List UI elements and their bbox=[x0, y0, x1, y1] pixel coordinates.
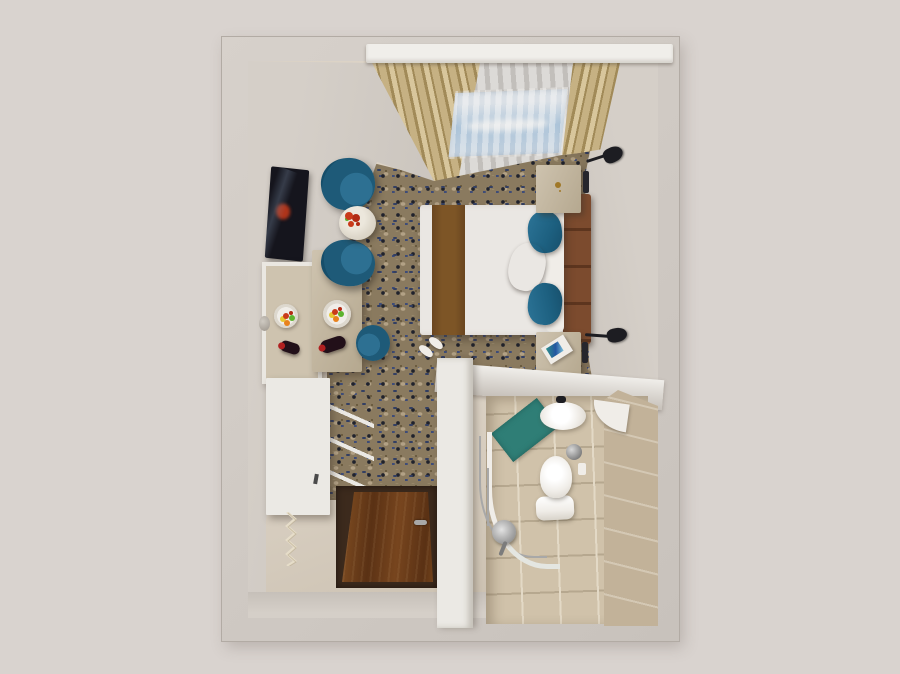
wall-mounted-tv bbox=[265, 166, 309, 261]
wine-bottle bbox=[319, 334, 348, 354]
coat-hook-rack bbox=[283, 512, 299, 566]
fruit-reflection bbox=[283, 313, 289, 319]
window-pelmet bbox=[366, 44, 673, 63]
mirror-reflection-fruit-plate bbox=[274, 304, 298, 328]
sheer-overlay bbox=[448, 87, 569, 159]
fruit bbox=[332, 309, 338, 315]
door-handle bbox=[414, 520, 427, 525]
mirror-reflection-wine-bottle bbox=[279, 339, 301, 356]
shelf-rails bbox=[328, 382, 374, 502]
round-marble-side-table bbox=[339, 206, 376, 240]
red-flower-centerpiece bbox=[345, 212, 353, 220]
magazine-cover bbox=[546, 341, 564, 358]
shower-slide-rail bbox=[487, 468, 489, 526]
upholstered-headboard bbox=[562, 194, 591, 344]
faucet bbox=[556, 396, 566, 403]
tv-glare bbox=[265, 166, 298, 261]
wooden-entry-door bbox=[336, 486, 438, 588]
trash-bin bbox=[566, 444, 582, 460]
fruit-plate bbox=[323, 300, 351, 328]
nightstand-left bbox=[536, 165, 581, 213]
wall-niche-top bbox=[583, 171, 589, 193]
door-recess bbox=[336, 486, 438, 588]
brown-bed-runner bbox=[432, 205, 465, 335]
wall-niche-bottom bbox=[582, 342, 588, 363]
door-knob bbox=[259, 316, 270, 331]
room-render-canvas bbox=[0, 0, 900, 674]
wine-cap bbox=[318, 344, 327, 353]
wood-grain bbox=[336, 486, 438, 588]
teal-desk-chair bbox=[356, 325, 390, 361]
bathroom-partition-wall bbox=[437, 358, 473, 628]
washbasin bbox=[540, 402, 586, 430]
room-keys bbox=[555, 182, 561, 188]
open-shelf-rails bbox=[328, 382, 374, 502]
wine-cap-reflection bbox=[277, 341, 286, 350]
toilet-paper-holder bbox=[578, 463, 586, 475]
white-dresser bbox=[266, 378, 330, 515]
